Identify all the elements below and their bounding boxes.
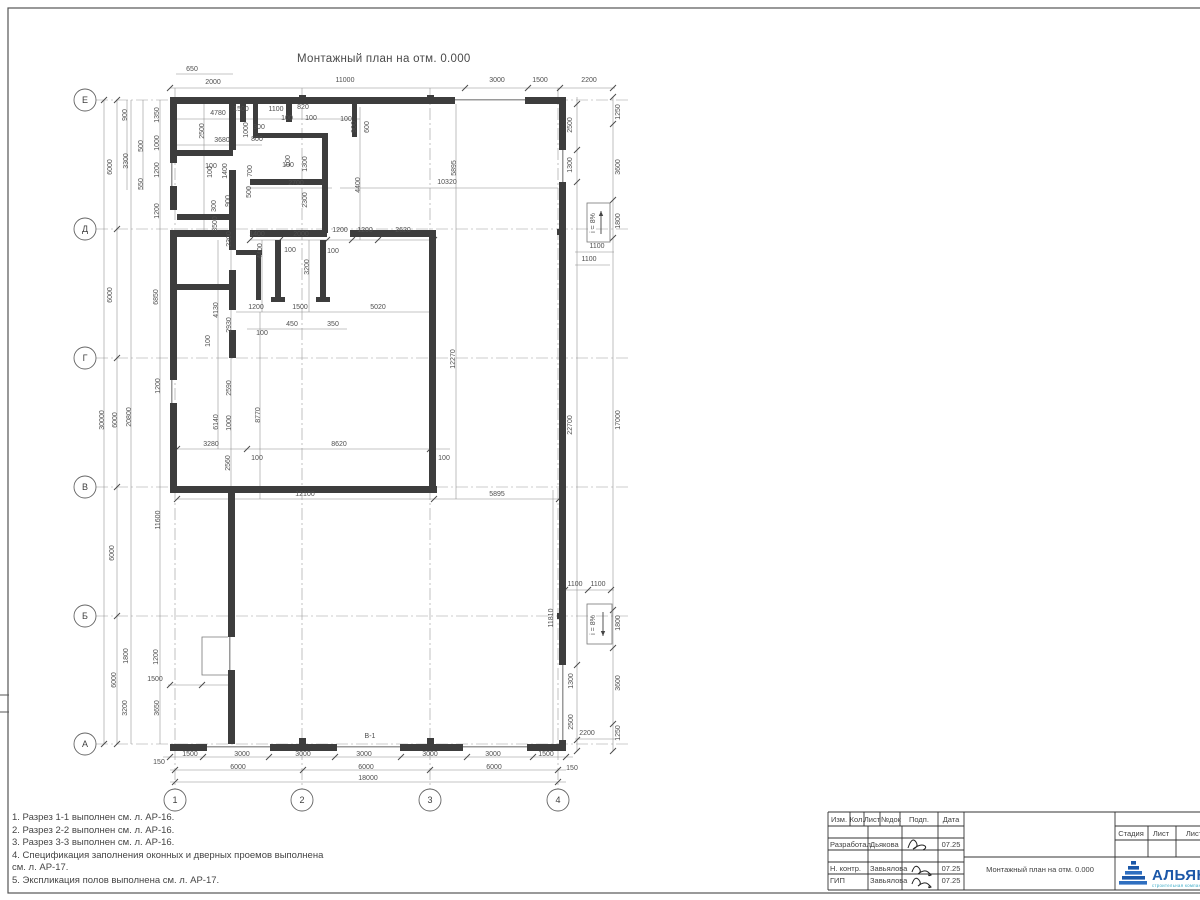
wall	[256, 255, 261, 300]
dimension-label: 1400	[222, 163, 229, 179]
logo-company-subtitle: строительная компания	[1152, 883, 1200, 888]
wall	[177, 150, 233, 156]
dimension-label: 1200	[332, 227, 348, 234]
dimension-label: 100	[207, 166, 214, 178]
dimension-label: 700	[247, 165, 254, 177]
wall	[170, 97, 455, 104]
dimension-label: 6000	[112, 412, 119, 428]
dimension-label: 1500	[532, 77, 548, 84]
dimension-label: 1200	[155, 378, 162, 394]
title-block-date: 07.25	[942, 864, 961, 873]
dimension-label: 30000	[99, 410, 106, 430]
dimension-label: 1500	[292, 304, 308, 311]
dimension-label: 2930	[226, 317, 233, 333]
title-block-name: Завьялова	[870, 876, 908, 885]
dimension-label: 6140	[213, 414, 220, 430]
dimension-label: 1300	[568, 673, 575, 689]
dimension-label: 100	[305, 115, 317, 122]
dimension-label: 500	[138, 140, 145, 152]
dimension-label: 1100	[567, 581, 582, 588]
dimension-label: 3000	[422, 751, 438, 758]
wall	[299, 738, 306, 744]
dimension-label: 6850	[153, 289, 160, 305]
dimension-label: 3000	[234, 751, 250, 758]
dimension-label: 3680	[214, 137, 230, 144]
wall	[170, 186, 177, 210]
wall	[170, 403, 177, 493]
grid-axis-label: 3	[427, 795, 432, 805]
dimension-label: 11000	[336, 77, 355, 84]
window-line	[337, 746, 400, 748]
dimension-label: 450	[286, 321, 298, 328]
wall	[170, 744, 207, 751]
title-block-stage-header: Стадия	[1118, 829, 1144, 838]
title-block-header: Лист	[864, 815, 881, 824]
dimension-label: 100	[285, 155, 292, 167]
title-block-header: №док	[881, 815, 902, 824]
wall	[170, 233, 177, 380]
dimension-label: 6000	[111, 672, 118, 688]
wall	[559, 182, 566, 665]
drawing-title: Монтажный план на отм. 0.000	[297, 53, 471, 65]
wall	[557, 613, 563, 619]
window-line	[171, 380, 173, 403]
wall	[429, 233, 436, 493]
dimension-label: 3500	[212, 216, 219, 232]
dimension-label: 3000	[356, 751, 372, 758]
dimension-label: 2200	[579, 730, 595, 737]
dimension-label: 17000	[615, 410, 622, 430]
dimension-label: 2700	[288, 180, 304, 187]
wall	[559, 97, 566, 150]
wall	[271, 297, 285, 302]
title-block-role: Разработал	[830, 840, 871, 849]
ramp-slope-label: i = 8%	[590, 615, 597, 635]
sheet-notes: 1. Разрез 1-1 выполнен см. л. АР-16.2. Р…	[12, 812, 323, 888]
dimension-label: 18000	[358, 775, 378, 782]
grid-axis-label: В	[82, 482, 88, 492]
ramp-arrow-head	[599, 211, 603, 216]
porch-outline	[202, 637, 228, 675]
dimension-label: 1500	[182, 751, 198, 758]
title-block-header: Кол.	[850, 815, 865, 824]
dimension-label: 500	[246, 186, 253, 198]
drawing-sheet: i = 8%i = 8% 650200011000300015002200478…	[0, 0, 1200, 900]
dimension-label: 900	[122, 109, 129, 121]
dimension-label: 3200	[304, 259, 311, 275]
dimension-label: 1300	[567, 157, 574, 173]
dimension-label: 100	[251, 455, 263, 462]
dimension-label: 100	[327, 248, 339, 255]
ramp-arrow-head	[601, 631, 605, 636]
title-block-doc-title: Монтажный план на отм. 0.000	[986, 865, 1094, 874]
wall	[177, 284, 233, 290]
dimension-label: 2300	[302, 192, 309, 208]
dimension-label: 1200	[154, 162, 161, 178]
title-block-stage-header: Лист	[1186, 829, 1200, 838]
ramps: i = 8%i = 8%	[587, 203, 612, 644]
title-block-header: Дата	[943, 815, 960, 824]
dimension-label: 2300	[226, 231, 233, 247]
wall	[527, 744, 566, 751]
dimension-label: 100	[205, 335, 212, 347]
wall	[400, 744, 463, 751]
dimension-label: 820	[297, 104, 309, 111]
grid-axis-label: Б	[82, 611, 88, 621]
title-block-name: Завьялова	[870, 864, 908, 873]
wall	[427, 738, 434, 744]
dimension-label: 300	[253, 124, 265, 131]
dimension-label: 2500	[568, 714, 575, 730]
note-line: 1. Разрез 1-1 выполнен см. л. АР-16.	[12, 812, 323, 825]
dimension-label: 1500	[147, 676, 163, 683]
dimension-label: 2560	[225, 455, 232, 471]
dimension-label: 1200	[357, 227, 373, 234]
grid-axis-label: 4	[555, 795, 560, 805]
wall	[228, 670, 235, 744]
dimension-label: 100	[281, 115, 293, 122]
dimension-label: 11810	[548, 608, 555, 627]
dimension-label: 5020	[370, 304, 386, 311]
dimension-label: 4400	[355, 177, 362, 193]
sheet-frame	[8, 8, 1200, 893]
dimension-label: 800	[251, 136, 263, 143]
title-block-signatures	[908, 840, 931, 888]
title-block-stage-header: Лист	[1153, 829, 1170, 838]
title-block-name: Дьякова	[870, 840, 899, 849]
wall	[275, 240, 281, 300]
wall	[170, 230, 233, 237]
dimension-label: 2620	[395, 227, 411, 234]
note-line: 4. Спецификация заполнения оконных и две…	[12, 850, 323, 863]
ramp-slope-label: i = 8%	[590, 213, 597, 233]
wall	[270, 744, 337, 751]
dimension-labels: 6502000110003000150022004780150011008203…	[99, 66, 622, 782]
title-block-header: Подп.	[909, 815, 929, 824]
window-line	[463, 746, 527, 748]
window-line	[171, 163, 173, 186]
dimension-label: 550	[138, 178, 145, 190]
dimension-label: 6000	[107, 287, 114, 303]
note-line: 5. Экспликация полов выполнена см. л. АР…	[12, 875, 323, 888]
grid-axis-label: 1	[172, 795, 177, 805]
wall	[170, 97, 177, 163]
dimension-label: 3280	[203, 441, 219, 448]
dimension-label: 1250	[615, 725, 622, 741]
dimension-label: 12100	[295, 491, 315, 498]
dimension-label: 3650	[154, 700, 161, 716]
dimension-label: 3200	[122, 700, 129, 716]
logo-company-name: АЛЬЯНС	[1152, 867, 1200, 884]
dimension-label: 1300	[302, 156, 309, 172]
dimension-label: 5895	[489, 491, 505, 498]
dimension-label: 22700	[567, 415, 574, 435]
window-line	[562, 150, 564, 182]
dimension-label: 10320	[437, 179, 457, 186]
dimension-label: 11600	[155, 510, 162, 529]
wall	[299, 95, 306, 101]
dimension-label: 1800	[615, 213, 622, 229]
title-block-role: Н. контр.	[830, 864, 861, 873]
dimension-label: 3000	[295, 751, 311, 758]
dimension-label: 3600	[615, 675, 622, 691]
title-block-date: 07.25	[942, 876, 961, 885]
dimension-label: 4780	[210, 110, 226, 117]
dimension-label: 1100	[581, 256, 596, 263]
note-line: см. л. АР-17.	[12, 862, 323, 875]
dimension-label: 6000	[230, 764, 246, 771]
dimension-label: 2000	[293, 231, 309, 238]
grid-axis-label: Г	[83, 353, 88, 363]
dimension-label: 2500	[199, 123, 206, 139]
window-line	[207, 746, 270, 748]
dimension-label: 150	[566, 765, 578, 772]
dimension-label: 2500	[567, 117, 574, 133]
dimension-label: 12270	[450, 349, 457, 369]
dimension-label: 100	[284, 247, 296, 254]
dimension-label: 1100	[590, 581, 605, 588]
dimension-label: 350	[327, 321, 339, 328]
dimension-label: 2200	[581, 77, 597, 84]
dimension-label: 8770	[255, 407, 262, 423]
dimension-label: 1000	[226, 415, 233, 431]
window-line	[562, 665, 564, 740]
logo-pyramid-icon	[1119, 861, 1147, 885]
window-line	[229, 637, 231, 670]
dimension-label: 1200	[248, 304, 264, 311]
grid-axis-label: Д	[82, 224, 88, 234]
dimension-label: 5895	[451, 160, 458, 176]
wall	[557, 229, 563, 235]
dimension-label: 300	[211, 200, 218, 212]
dimension-label: 4130	[213, 302, 220, 318]
dimension-label: 1250	[615, 104, 622, 120]
dimension-label: 2590	[226, 380, 233, 396]
dimension-label: 6000	[109, 545, 116, 561]
signature	[912, 878, 931, 887]
wall	[316, 297, 330, 302]
dimension-label: 1100	[268, 106, 283, 113]
note-line: 3. Разрез 3-3 выполнен см. л. АР-16.	[12, 837, 323, 850]
dimension-label: 20800	[126, 407, 133, 427]
dimension-label: 100	[256, 330, 268, 337]
dimension-label: 1200	[153, 649, 160, 665]
wall	[177, 214, 233, 220]
dimension-label: 1800	[615, 615, 622, 631]
dimension-label: 6000	[486, 764, 502, 771]
wall	[427, 95, 434, 101]
grid-axis-label: 2	[299, 795, 304, 805]
dimension-label: 8620	[331, 441, 347, 448]
dimension-label: 6000	[107, 159, 114, 175]
grid-axis-label: А	[82, 739, 88, 749]
title-block-date: 07.25	[942, 840, 961, 849]
dimension-label: 900	[225, 195, 232, 207]
dimension-label: 4400	[257, 243, 264, 259]
title-block-role: ГИП	[830, 876, 845, 885]
window-line	[455, 99, 525, 101]
plan-drawing: i = 8%i = 8% 650200011000300015002200478…	[0, 0, 1200, 900]
dimension-label: 3000	[489, 77, 505, 84]
grid-axis-label: Е	[82, 95, 88, 105]
dimension-label: 900	[351, 121, 358, 133]
dimension-label: 3300	[123, 153, 130, 169]
dimension-label: 3600	[615, 159, 622, 175]
beam-mark: В-1	[365, 733, 376, 740]
dimension-label: 1000	[243, 122, 250, 138]
wall	[253, 133, 327, 138]
dimension-label: 600	[364, 121, 371, 133]
grid-axis-bubbles: ЕДГВБА1234	[74, 89, 569, 811]
note-line: 2. Разрез 2-2 выполнен см. л. АР-16.	[12, 825, 323, 838]
dimension-label: 6000	[358, 764, 374, 771]
dimension-label: 1200	[154, 203, 161, 219]
title-block-header: Изм.	[831, 815, 847, 824]
company-logo: АЛЬЯНС строительная компания	[1119, 861, 1200, 888]
dimension-label: 1000	[154, 135, 161, 151]
dimension-label: 150	[153, 759, 165, 766]
dimension-label: 1800	[123, 648, 130, 664]
wall	[228, 487, 235, 637]
wall	[229, 330, 236, 358]
dimension-label: 3000	[485, 751, 501, 758]
signature	[908, 840, 926, 850]
dimension-label: 1350	[154, 107, 161, 123]
wall	[320, 240, 326, 300]
dimension-label: 100	[438, 455, 450, 462]
dimension-label: 1400	[249, 231, 265, 238]
dimension-label: 1500	[538, 751, 554, 758]
dimension-label: 650	[186, 66, 198, 73]
dimension-label: 1100	[589, 243, 604, 250]
dimension-label: 1500	[233, 106, 249, 113]
dimension-label: 2000	[205, 79, 221, 86]
